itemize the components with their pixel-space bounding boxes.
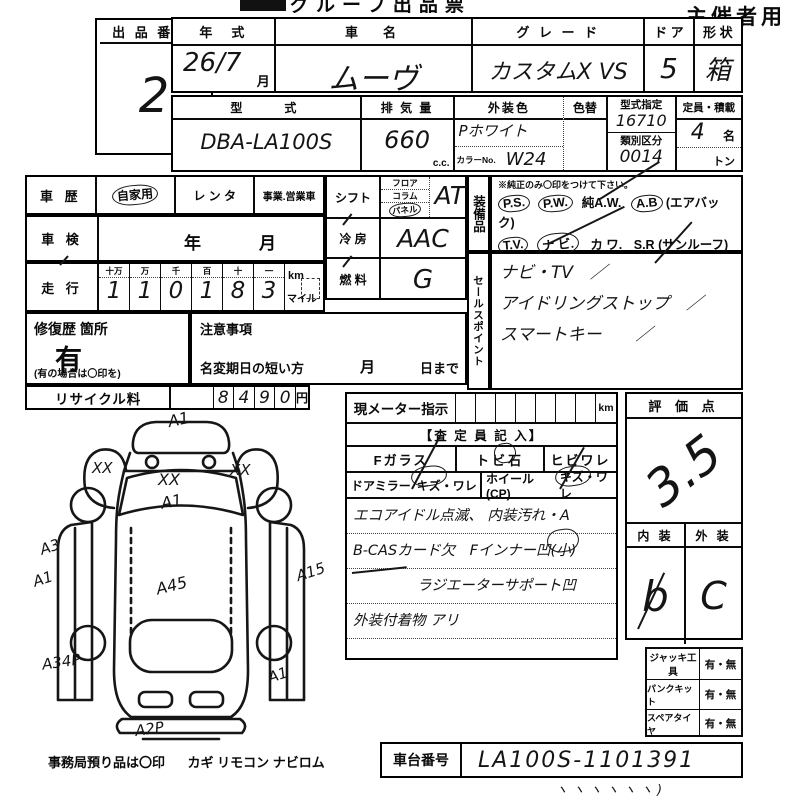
- color-no-value: W24: [506, 149, 547, 170]
- grade-col: グ レ ー ド カスタムX VS: [473, 19, 645, 91]
- grade-value: カスタムX VS: [489, 54, 628, 86]
- aircon-label: 冷 房: [327, 219, 381, 257]
- assessor-header: 【査 定 員 記 入】: [347, 424, 616, 447]
- rename-month-unit: 月: [360, 356, 375, 377]
- history-rental: レ ン タ: [176, 177, 255, 213]
- custody-line: 事務局預り品は〇印 カギ リモコン ナビロム: [48, 752, 325, 772]
- spare-tire-label: スペアタイヤ: [647, 710, 700, 737]
- equip-leather: カ ワ.: [590, 238, 622, 252]
- mileage-digit-1: 一 3: [254, 264, 285, 310]
- mileage-label: 走 行: [27, 264, 99, 310]
- color-no-label: カラーNo.: [457, 154, 496, 166]
- caution-label: 注意事項: [200, 319, 252, 338]
- mileage-unit-cell: km マイル: [285, 264, 323, 310]
- displacement-col: 排 気 量 660 c.c.: [362, 97, 455, 170]
- mileage-digit-100k: 十万 1: [99, 264, 130, 310]
- meter-box-7: [576, 394, 596, 422]
- note4-text: 外装付着物 アリ: [353, 613, 459, 629]
- shaken-year-unit: 年: [184, 229, 201, 254]
- grade-label: グ レ ー ド: [473, 19, 643, 46]
- chassis-value: LA100S-1101391: [478, 748, 695, 773]
- top-table: 年 式 26/7 月 車 名 ムーヴ グ レ ー ド カスタムX VS ド ア …: [171, 17, 743, 93]
- damage-windshield-xx: XX: [158, 470, 180, 489]
- form-title-logo: [240, 0, 286, 11]
- fuel-label: 燃 料: [327, 259, 381, 300]
- mileage-h2: 万: [130, 264, 160, 278]
- chassis-check-ticks: ヽヽヽヽヽヽ): [555, 779, 666, 798]
- shape-label: 形 状: [695, 19, 741, 46]
- mileage-digit-10: 十 8: [223, 264, 254, 310]
- name-value: ムーヴ: [329, 54, 419, 98]
- meter-box-5: [536, 394, 556, 422]
- jack-value: 有・無: [700, 649, 741, 679]
- interior-label: 内 装: [627, 524, 686, 546]
- exterior-label: 外 装: [686, 524, 741, 546]
- mileage-d1: 1: [99, 278, 129, 304]
- mileage-h1: 十万: [99, 264, 129, 278]
- shape-value: 箱: [705, 50, 731, 87]
- mileage-d4: 1: [192, 278, 222, 304]
- year-unit: 月: [257, 71, 270, 90]
- name-col: 車 名 ムーヴ: [276, 19, 474, 91]
- recycle-d4: 0: [275, 387, 296, 408]
- equipment-strip: 装備品: [467, 175, 490, 252]
- recycle-label: リサイクル料: [27, 387, 171, 408]
- shaken-label: 車 検: [27, 217, 99, 260]
- puncture-kit-value: 有・無: [700, 680, 741, 709]
- rename-label: 名変期日の短い方: [200, 358, 304, 377]
- shape-col: 形 状 箱: [695, 19, 741, 91]
- shift-opt-floor: フロア: [381, 177, 429, 190]
- aircon-value: AAC: [381, 219, 465, 257]
- tools-table: ジャッキ工 具 有・無 パンクキット 有・無 スペアタイヤ 有・無: [645, 647, 743, 737]
- door-value: 5: [660, 52, 678, 85]
- score-label: 評 価 点: [627, 394, 741, 419]
- mileage-digit-100: 百 1: [192, 264, 223, 310]
- mileage-d5: 8: [223, 278, 253, 304]
- year-value: 26/7: [183, 48, 241, 78]
- meter-box-4: [516, 394, 536, 422]
- shaken-row: 車 検 年 月: [25, 215, 325, 262]
- shift-value: AT: [434, 181, 465, 210]
- damage-left-mirror: XX: [92, 459, 113, 477]
- capacity-label: 定員・積載: [677, 97, 741, 120]
- mileage-digit-10k: 万 1: [130, 264, 161, 310]
- score-box: 評 価 点 3.5 内 装 外 装 b C: [625, 392, 743, 640]
- shaken-month-unit: 月: [259, 229, 276, 254]
- assessor-note-4: 外装付着物 アリ: [347, 604, 616, 639]
- shift-label: シフト: [327, 177, 381, 217]
- color-label: 外装色: [455, 97, 564, 120]
- history-private: 自家用: [97, 177, 176, 213]
- interior-value: b: [627, 548, 686, 644]
- note1-text: エコアイドル点滅、 内装汚れ・A: [353, 508, 570, 524]
- recycle-d3: 9: [255, 387, 276, 408]
- spec-table: 型 式 DBA-LA100S 排 気 量 660 c.c. 外装色 Pホワイト …: [171, 95, 743, 172]
- model-col: 型 式 DBA-LA100S: [173, 97, 362, 170]
- meter-box-6: [556, 394, 576, 422]
- wheel-cell: ホイール(CP) キズ・ワレ: [482, 473, 616, 497]
- fuel-value: G: [381, 259, 465, 300]
- door-label: ド ア: [645, 19, 692, 46]
- meter-label: 現メーター指示: [347, 394, 455, 422]
- rename-day-unit: 日まで: [420, 358, 459, 377]
- mileage-mile-checkbox: [301, 278, 320, 299]
- displacement-value: 660: [384, 126, 430, 154]
- recycle-d2: 4: [234, 387, 255, 408]
- color-value: Pホワイト: [459, 122, 528, 140]
- displacement-label: 排 気 量: [362, 97, 453, 120]
- meter-box-3: [496, 394, 516, 422]
- color-col: 外装色 Pホワイト カラーNo. W24: [455, 97, 564, 170]
- recycle-d1: 8: [214, 387, 235, 408]
- mileage-d2: 1: [130, 278, 160, 304]
- mileage-d6: 3: [254, 278, 284, 304]
- assessor-note-3: ラジエーターサポート凹: [347, 569, 616, 604]
- year-col: 年 式 26/7 月: [173, 19, 276, 91]
- wheel-label: ホイール(CP): [486, 470, 554, 501]
- model-value: DBA-LA100S: [200, 130, 332, 154]
- custody-label: 事務局預り品は〇印: [48, 755, 165, 770]
- type-value: 16710: [616, 111, 667, 130]
- mileage-row: 走 行 十万 1 万 1 千 0 百 1 十 8 一 3 km マイル: [25, 262, 325, 312]
- ton-unit: トン: [713, 153, 735, 169]
- meter-table: 現メーター指示 km 【査 定 員 記 入】 Fガラス トビ石 ヒビワレ ドアミ…: [345, 392, 618, 660]
- recycle-unit: 円: [296, 387, 308, 408]
- history-commercial: 事業.営業車: [255, 177, 323, 213]
- caution-box: 注意事項 名変期日の短い方 月 日まで: [190, 312, 467, 385]
- equip-sr: S.R: [634, 238, 655, 252]
- class-label: 類別区分: [608, 132, 675, 147]
- sales-strip: セールスポイント: [467, 252, 490, 390]
- repair-note: (有の場合は〇印を): [34, 365, 121, 380]
- mileage-d3: 0: [161, 278, 191, 304]
- puncture-kit-label: パンクキット: [647, 680, 700, 709]
- custody-items: カギ リモコン ナビロム: [187, 755, 324, 770]
- type-class-col: 型式指定 16710 類別区分 0014: [608, 97, 677, 170]
- meter-box-1: [455, 394, 476, 422]
- sales-line2: アイドリングストップ ／: [500, 289, 733, 314]
- equipment-vertical-label: 装備品: [469, 195, 488, 233]
- score-value: 3.5: [635, 423, 733, 518]
- door-col: ド ア 5: [645, 19, 694, 91]
- color-change-label: 色替: [564, 97, 605, 120]
- spare-tire-value: 有・無: [700, 710, 741, 737]
- repair-box: 修復歴 箇所 有 (有の場合は〇印を): [25, 312, 190, 385]
- sales-box: ナビ・TV ／ アイドリングストップ ／ スマートキー ／: [490, 252, 743, 390]
- jack-label: ジャッキ工 具: [647, 649, 700, 679]
- color-change-col: 色替: [563, 97, 607, 170]
- exterior-value: C: [686, 548, 741, 644]
- auction-sheet: グループ出品票 主催者用 出 品 番 号 2 年 式 26/7 月 車 名 ムー…: [0, 0, 800, 800]
- mileage-h3: 千: [161, 264, 191, 278]
- history-row: 車 歴 自家用 レ ン タ 事業.営業車: [25, 175, 325, 215]
- history-label: 車 歴: [27, 177, 97, 213]
- capacity-col: 定員・積載 4 名 トン: [677, 97, 741, 170]
- name-label: 車 名: [276, 19, 472, 46]
- shift-opt-panel: パネル: [389, 202, 422, 219]
- mileage-h4: 百: [192, 264, 222, 278]
- damage-windshield-a1: A1: [160, 490, 184, 512]
- mirror-label: ドアミラー: [351, 477, 411, 494]
- year-label: 年 式: [173, 19, 274, 46]
- recycle-blank: [171, 387, 213, 408]
- sales-line3: スマートキー ／: [500, 320, 733, 345]
- shift-table: シフト フロア コラム パネル AT 冷 房 AAC 燃 料 G: [325, 175, 467, 300]
- shift-opt-column: コラム: [381, 190, 429, 203]
- displacement-unit: c.c.: [433, 158, 450, 169]
- note3-text: ラジエーターサポート凹: [417, 578, 576, 594]
- mileage-digit-1k: 千 0: [161, 264, 192, 310]
- equip-ps: P.S.: [497, 194, 530, 214]
- note2-text: B-CASカード欠 Fインナー凹(小): [353, 543, 576, 559]
- sales-vertical-label: セールスポイント: [471, 275, 486, 367]
- meter-unit: km: [596, 394, 616, 422]
- mileage-h6: 一: [254, 264, 284, 278]
- form-title-clip: グループ出品票: [290, 0, 560, 13]
- assessor-note-5-empty: [347, 639, 616, 672]
- damage-right-mirror: XX: [230, 461, 251, 479]
- mileage-h5: 十: [223, 264, 253, 278]
- equip-pw: P.W.: [537, 194, 573, 214]
- shift-options: フロア コラム パネル: [381, 177, 430, 217]
- capacity-unit: 名: [723, 127, 735, 144]
- recycle-row: リサイクル料 8 4 9 0 円: [25, 385, 310, 410]
- equip-ab: A.B: [630, 194, 663, 214]
- chassis-label: 車台番号: [382, 744, 462, 776]
- history-private-label: 自家用: [112, 183, 160, 207]
- chassis-row: 車台番号 LA100S-1101391: [380, 742, 743, 778]
- assessor-note-1: エコアイドル点滅、 内装汚れ・A: [347, 499, 616, 534]
- type-label: 型式指定: [608, 97, 675, 111]
- model-label: 型 式: [173, 97, 360, 120]
- capacity-value: 4: [691, 120, 705, 145]
- sales-line1: ナビ・TV ／: [500, 258, 733, 283]
- repair-label: 修復歴 箇所: [34, 319, 108, 339]
- meter-box-2: [476, 394, 496, 422]
- form-title: グループ出品票: [290, 0, 471, 13]
